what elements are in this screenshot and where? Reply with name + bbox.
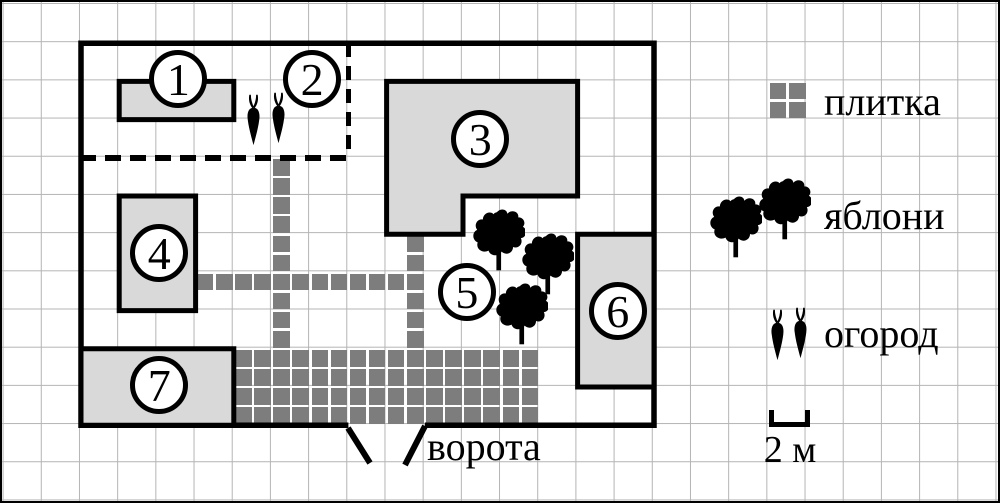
apple-tree-icon xyxy=(759,179,812,240)
apple-tree-icon xyxy=(710,197,763,258)
legend-label-garden: огород xyxy=(824,314,939,354)
apple-tree-icon xyxy=(496,284,549,345)
legend-label-tiles: плитка xyxy=(824,82,941,122)
plan-canvas: 1234567 ворота плитка яблони огород 2 м xyxy=(0,0,1000,503)
marker-5: 5 xyxy=(438,263,496,321)
gate-marks-group xyxy=(348,426,425,465)
marker-7: 7 xyxy=(130,356,188,414)
gate-label: ворота xyxy=(427,427,541,467)
carrot-icon xyxy=(794,308,806,358)
marker-3: 3 xyxy=(451,110,509,168)
scale-bracket-icon xyxy=(769,410,810,427)
carrot-icon xyxy=(247,95,259,145)
legend-label-apple-trees: яблони xyxy=(824,196,945,236)
gate-mark xyxy=(405,426,425,465)
apple-tree-icon xyxy=(522,234,575,295)
gate-mark xyxy=(348,428,370,463)
carrot-icon xyxy=(272,93,284,143)
carrot-icon xyxy=(771,310,783,360)
marker-6: 6 xyxy=(589,282,647,340)
scale-label: 2 м xyxy=(762,431,818,469)
apple-tree-icon xyxy=(473,210,526,271)
